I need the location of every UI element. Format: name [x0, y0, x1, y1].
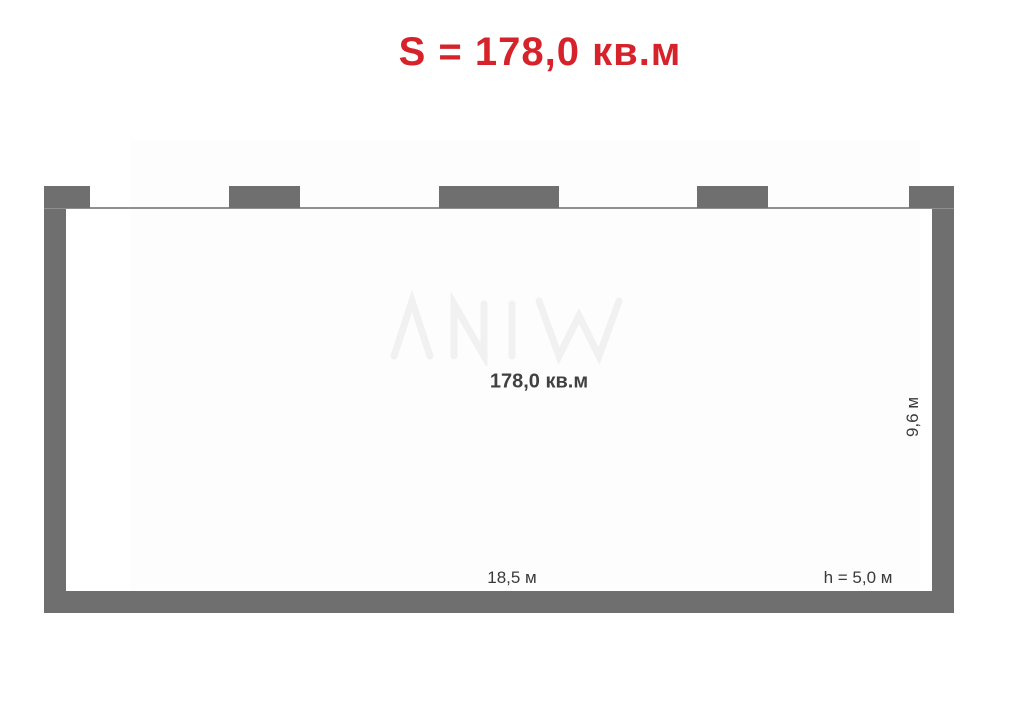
floor-plan-page: S = 178,0 кв.м 178,0 кв.м 18,5 м h = 5,0…	[0, 0, 1024, 724]
wall-pier-top-4	[697, 186, 768, 208]
room-depth-dimension-label: 9,6 м	[903, 397, 923, 437]
watermark	[384, 286, 644, 366]
total-area-title: S = 178,0 кв.м	[399, 30, 682, 75]
floor-plan: 178,0 кв.м 18,5 м h = 5,0 м 9,6 м	[44, 186, 954, 613]
wall-pier-top-left-corner	[44, 186, 90, 208]
wall-left	[44, 186, 66, 613]
ceiling-height-label: h = 5,0 м	[824, 568, 893, 588]
wall-right	[932, 186, 954, 613]
wall-pier-top-right-corner	[909, 186, 954, 208]
room-area-label: 178,0 кв.м	[490, 371, 588, 394]
wall-pier-top-3	[439, 186, 559, 208]
room-width-dimension-label: 18,5 м	[487, 568, 537, 588]
wall-pier-top-2	[229, 186, 300, 208]
wall-bottom	[44, 591, 954, 613]
